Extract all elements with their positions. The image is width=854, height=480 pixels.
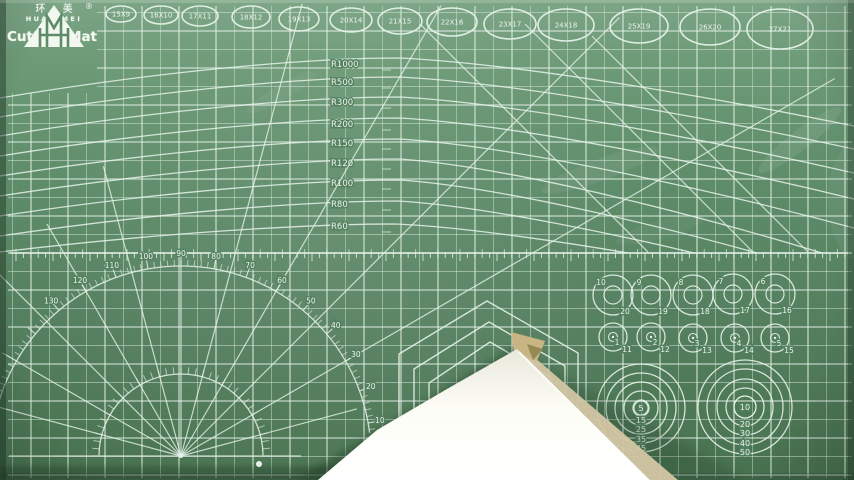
- cutting-mat-photo: R1000R500R300R200R150R120R100R80R6010203…: [0, 0, 854, 480]
- vignette: [0, 0, 854, 480]
- brand-logo: ® 环 美 HUAN MEI Cutting Mat: [6, 2, 102, 45]
- registered-mark: ®: [85, 3, 93, 12]
- triangle-mark-icon: [23, 4, 85, 48]
- mat-svg: R1000R500R300R200R150R120R100R80R6010203…: [0, 0, 854, 480]
